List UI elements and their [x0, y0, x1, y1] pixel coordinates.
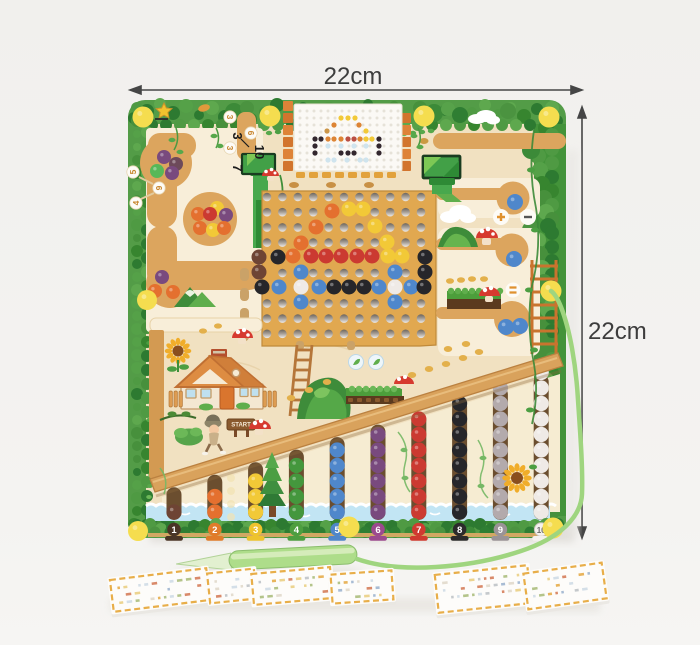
svg-text:6: 6 — [375, 525, 380, 536]
svg-text:7: 7 — [416, 525, 421, 536]
svg-text:3: 3 — [225, 146, 235, 151]
svg-text:START: START — [231, 423, 251, 429]
svg-text:4: 4 — [131, 200, 141, 205]
svg-text:5: 5 — [128, 169, 138, 174]
svg-text:6: 6 — [246, 131, 256, 136]
svg-text:3: 3 — [230, 132, 245, 139]
svg-text:3: 3 — [253, 525, 258, 536]
svg-text:3: 3 — [225, 115, 235, 120]
svg-text:8: 8 — [457, 525, 462, 536]
svg-text:9: 9 — [154, 185, 164, 190]
svg-text:1: 1 — [171, 525, 177, 536]
svg-text:22cm: 22cm — [324, 63, 383, 90]
svg-text:9: 9 — [498, 525, 503, 536]
svg-text:7: 7 — [230, 164, 245, 171]
svg-text:22cm: 22cm — [588, 318, 647, 345]
svg-text:10: 10 — [252, 145, 267, 159]
svg-text:4: 4 — [294, 525, 300, 536]
svg-text:2: 2 — [212, 525, 217, 536]
